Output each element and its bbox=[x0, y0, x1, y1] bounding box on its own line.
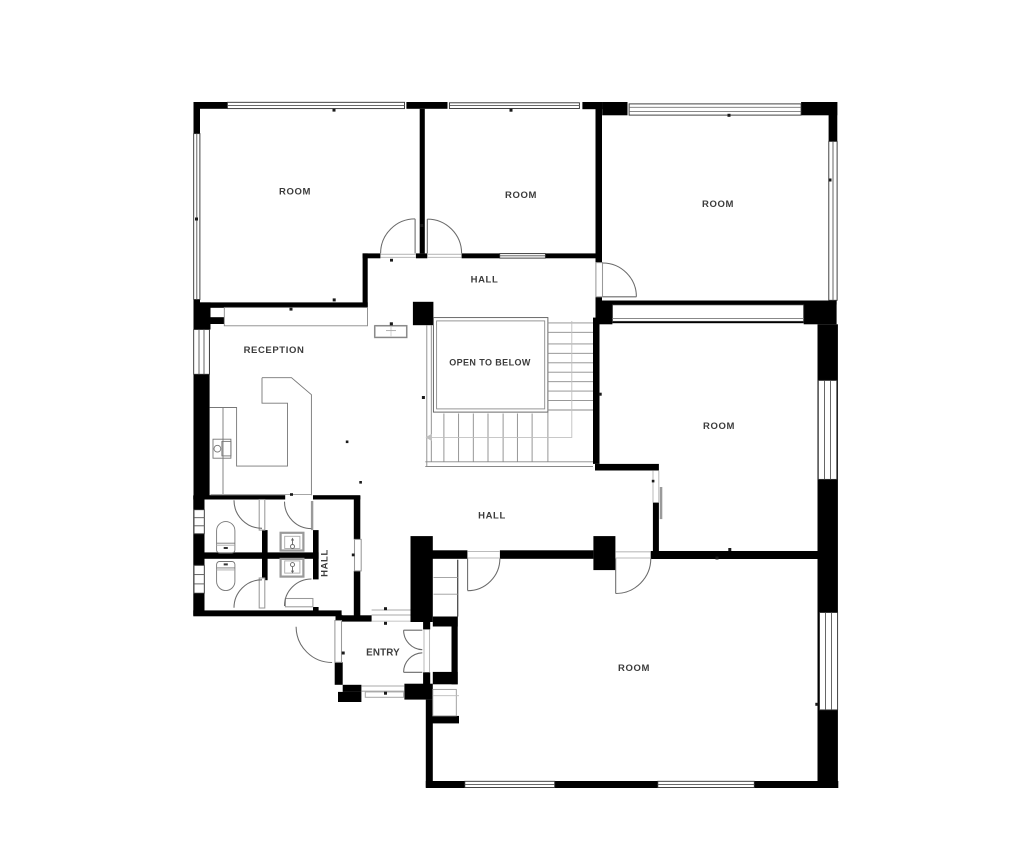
svg-text:HALL: HALL bbox=[319, 549, 330, 577]
svg-text:ROOM: ROOM bbox=[703, 421, 735, 432]
svg-text:HALL: HALL bbox=[478, 511, 506, 522]
svg-text:ROOM: ROOM bbox=[618, 663, 650, 674]
svg-text:ROOM: ROOM bbox=[279, 187, 311, 198]
svg-text:HALL: HALL bbox=[471, 275, 499, 286]
svg-text:ROOM: ROOM bbox=[702, 199, 734, 210]
svg-text:ROOM: ROOM bbox=[505, 190, 537, 201]
svg-text:OPEN TO BELOW: OPEN TO BELOW bbox=[449, 358, 531, 368]
svg-text:ENTRY: ENTRY bbox=[366, 648, 400, 659]
svg-text:RECEPTION: RECEPTION bbox=[244, 345, 305, 356]
